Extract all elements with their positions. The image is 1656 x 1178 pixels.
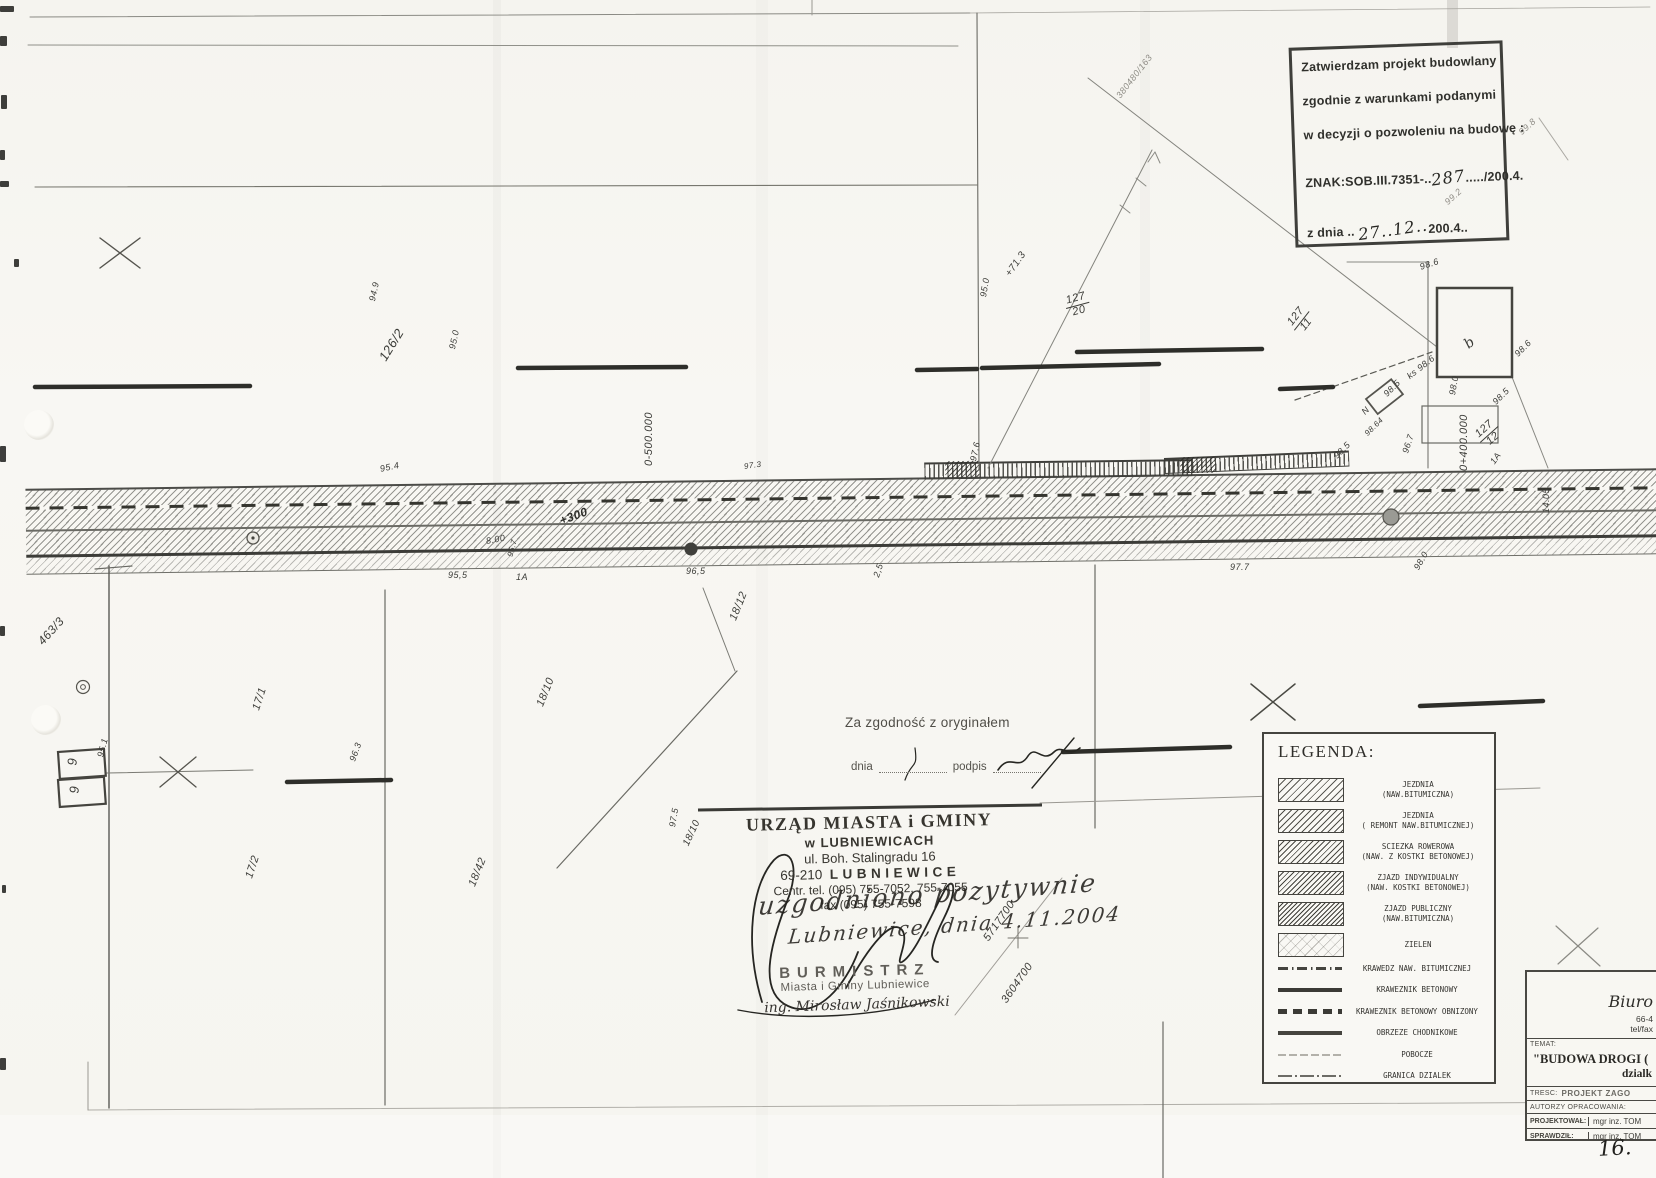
legend-symbol — [1278, 1054, 1342, 1056]
manhole-icon — [1383, 509, 1399, 525]
approval-date-line: z dnia .. 27..12..200.4.. — [1307, 217, 1469, 242]
autorzy-label: AUTORZY OPRACOWANIA: — [1530, 1104, 1626, 1111]
mayor-stamp: BURMISTRZ Miasta i Gminy Lubniewice — [740, 960, 971, 995]
legend-item-label: ZIELEN — [1348, 940, 1488, 950]
firm-telfax: tel/fax — [1630, 1024, 1653, 1034]
tresc-label: TRESC: — [1530, 1090, 1557, 1097]
legend-item: KRAWEDZ NAW. BITUMICZNEJ — [1278, 962, 1488, 975]
znak-handwritten-number: 287 — [1430, 166, 1466, 190]
legend-item: KRAWEZNIK BETONOWY OBNIZONY — [1278, 1005, 1488, 1018]
legend-box: LEGENDA: JEZDNIA(NAW.BITUMICZNA)JEZDNIA(… — [1262, 732, 1496, 1084]
date-suffix: 200.4.. — [1428, 221, 1468, 236]
podpis-leader-line — [993, 762, 1041, 773]
title-block-tresc-section: TRESC: PROJEKT ZAGO — [1527, 1087, 1656, 1101]
tresc-value: PROJEKT ZAGO — [1561, 1089, 1630, 1098]
legend-symbol — [1278, 933, 1344, 957]
firm-name: Biuro — [1609, 992, 1653, 1011]
legend-item: OBRZEZE CHODNIKOWE — [1278, 1027, 1488, 1040]
temat-label: TEMAT: — [1530, 1041, 1556, 1048]
legend-item: GRANICA DZIALEK — [1278, 1070, 1488, 1083]
certification-sign-row: dnia podpis — [851, 761, 1041, 773]
buildings — [58, 288, 1512, 807]
legend-item: KRAWEZNIK BETONOWY — [1278, 984, 1488, 997]
row-label: PROJEKTOWAŁ: — [1527, 1118, 1588, 1125]
chainage-plot-outline — [1422, 406, 1498, 443]
title-block-firm-section: Biuro 66-4 tel/fax — [1527, 972, 1656, 1039]
legend-item-label: ZJAZD PUBLICZNY(NAW.BITUMICZNA) — [1348, 904, 1488, 924]
point-symbols — [77, 509, 1400, 694]
znak-suffix: .....​/200.4. — [1465, 169, 1523, 185]
small-building-outline — [1366, 379, 1403, 414]
pencil-x-mark — [1556, 926, 1600, 966]
date-label: z dnia .. — [1307, 225, 1355, 241]
legend-item: JEZDNIA(NAW.BITUMICZNA) — [1278, 776, 1488, 803]
legend-symbol — [1278, 1009, 1342, 1014]
approval-line-1: Zatwierdzam projekt budowlany — [1301, 54, 1497, 75]
legend-symbol — [1278, 840, 1344, 864]
utility-point-icon — [251, 536, 254, 539]
podpis-label: podpis — [953, 761, 987, 773]
legend-item-label: KRAWEDZ NAW. BITUMICZNEJ — [1346, 964, 1488, 974]
legend-item: ZJAZD PUBLICZNY(NAW.BITUMICZNA) — [1278, 900, 1488, 927]
approval-stamp: Zatwierdzam projekt budowlany zgodnie z … — [1289, 40, 1510, 247]
legend-item-label: JEZDNIA(NAW.BITUMICZNA) — [1348, 780, 1488, 800]
manhole-icon — [685, 543, 698, 556]
survey-x-mark — [100, 238, 140, 268]
dnia-leader-line — [879, 762, 947, 773]
building-b-outline — [1437, 288, 1512, 377]
row-label: SPRAWDZIŁ: — [1527, 1133, 1588, 1140]
approval-line-2: zgodnie z warunkami podanymi — [1302, 88, 1496, 109]
legend-item-label: JEZDNIA( REMONT NAW.BITUMICZNEJ) — [1348, 811, 1488, 831]
office-postcode: 69-210 — [780, 867, 822, 883]
title-block-autorzy-section: AUTORZY OPRACOWANIA: — [1527, 1101, 1656, 1114]
survey-x-mark — [1251, 684, 1295, 720]
legend-symbol — [1278, 1075, 1342, 1077]
legend-symbol — [1278, 778, 1344, 802]
certification-title: Za zgodność z oryginałem — [845, 715, 1010, 730]
benchmark-icon — [81, 685, 86, 690]
legend-symbol — [1278, 809, 1344, 833]
benchmark-icon — [77, 681, 90, 694]
curb-bars — [35, 349, 1543, 782]
legend-symbol — [1278, 871, 1344, 895]
legend-item-label: ZJAZD INDYWIDUALNY(NAW. KOSTKI BETONOWEJ… — [1348, 873, 1488, 893]
legend-item-label: SCIEZKA ROWEROWA(NAW. Z KOSTKI BETONOWEJ… — [1348, 842, 1488, 862]
legend-item-label: OBRZEZE CHODNIKOWE — [1346, 1028, 1488, 1038]
title-block-row: PROJEKTOWAŁ:mgr inz. TOM — [1527, 1114, 1656, 1129]
row-value: mgr inz. TOM — [1588, 1117, 1656, 1126]
certification-note: Za zgodność z oryginałem dnia podpis — [845, 715, 1010, 730]
znak-prefix: ZNAK:SOB.III.7351-.. — [1305, 172, 1432, 190]
legend-item: POBOCZE — [1278, 1048, 1488, 1061]
legend-symbol — [1278, 988, 1342, 993]
legend-item-label: POBOCZE — [1346, 1050, 1488, 1060]
temat-value: "BUDOWA DROGI ( — [1533, 1052, 1648, 1067]
date-handwritten: 27..12.. — [1357, 215, 1429, 244]
title-block-row: SPRAWDZIŁ:mgr inz. TOM — [1527, 1129, 1656, 1143]
legend-item-label: GRANICA DZIALEK — [1346, 1071, 1488, 1081]
legend-title: LEGENDA: — [1278, 742, 1494, 762]
legend-symbol — [1278, 967, 1342, 969]
legend-symbol — [1278, 1031, 1342, 1035]
legend-item: JEZDNIA( REMONT NAW.BITUMICZNEJ) — [1278, 807, 1488, 834]
legend-symbol — [1278, 902, 1344, 926]
approval-line-3: w decyzji o pozwoleniu na budowę : — [1303, 121, 1524, 143]
temat-value-2: dzialk — [1622, 1068, 1652, 1080]
scanned-plan-sheet: 126/294.995.00-500.00095.4+3008.0095.797… — [0, 0, 1656, 1178]
approval-znak-line: ZNAK:SOB.III.7351-..287.....​/200.4. — [1305, 165, 1524, 192]
parcel9-building-outline — [58, 749, 106, 779]
firm-postcode: 66-4 — [1636, 1014, 1653, 1024]
parcel9-building-outline — [58, 777, 106, 807]
page-number: 16. — [1597, 1135, 1632, 1161]
title-block-rows: PROJEKTOWAŁ:mgr inz. TOMSPRAWDZIŁ:mgr in… — [1527, 1114, 1656, 1143]
title-block: Biuro 66-4 tel/fax TEMAT: "BUDOWA DROGI … — [1525, 970, 1656, 1141]
dnia-label: dnia — [851, 761, 873, 773]
legend-item: ZIELEN — [1278, 931, 1488, 958]
legend-item: SCIEZKA ROWEROWA(NAW. Z KOSTKI BETONOWEJ… — [1278, 838, 1488, 865]
legend-item-label: KRAWEZNIK BETONOWY OBNIZONY — [1346, 1007, 1488, 1017]
legend-item: ZJAZD INDYWIDUALNY(NAW. KOSTKI BETONOWEJ… — [1278, 869, 1488, 896]
legend-item-label: KRAWEZNIK BETONOWY — [1346, 985, 1488, 995]
legend-items: JEZDNIA(NAW.BITUMICZNA)JEZDNIA( REMONT N… — [1264, 776, 1494, 1091]
title-block-temat-section: TEMAT: "BUDOWA DROGI ( dzialk — [1527, 1039, 1656, 1087]
